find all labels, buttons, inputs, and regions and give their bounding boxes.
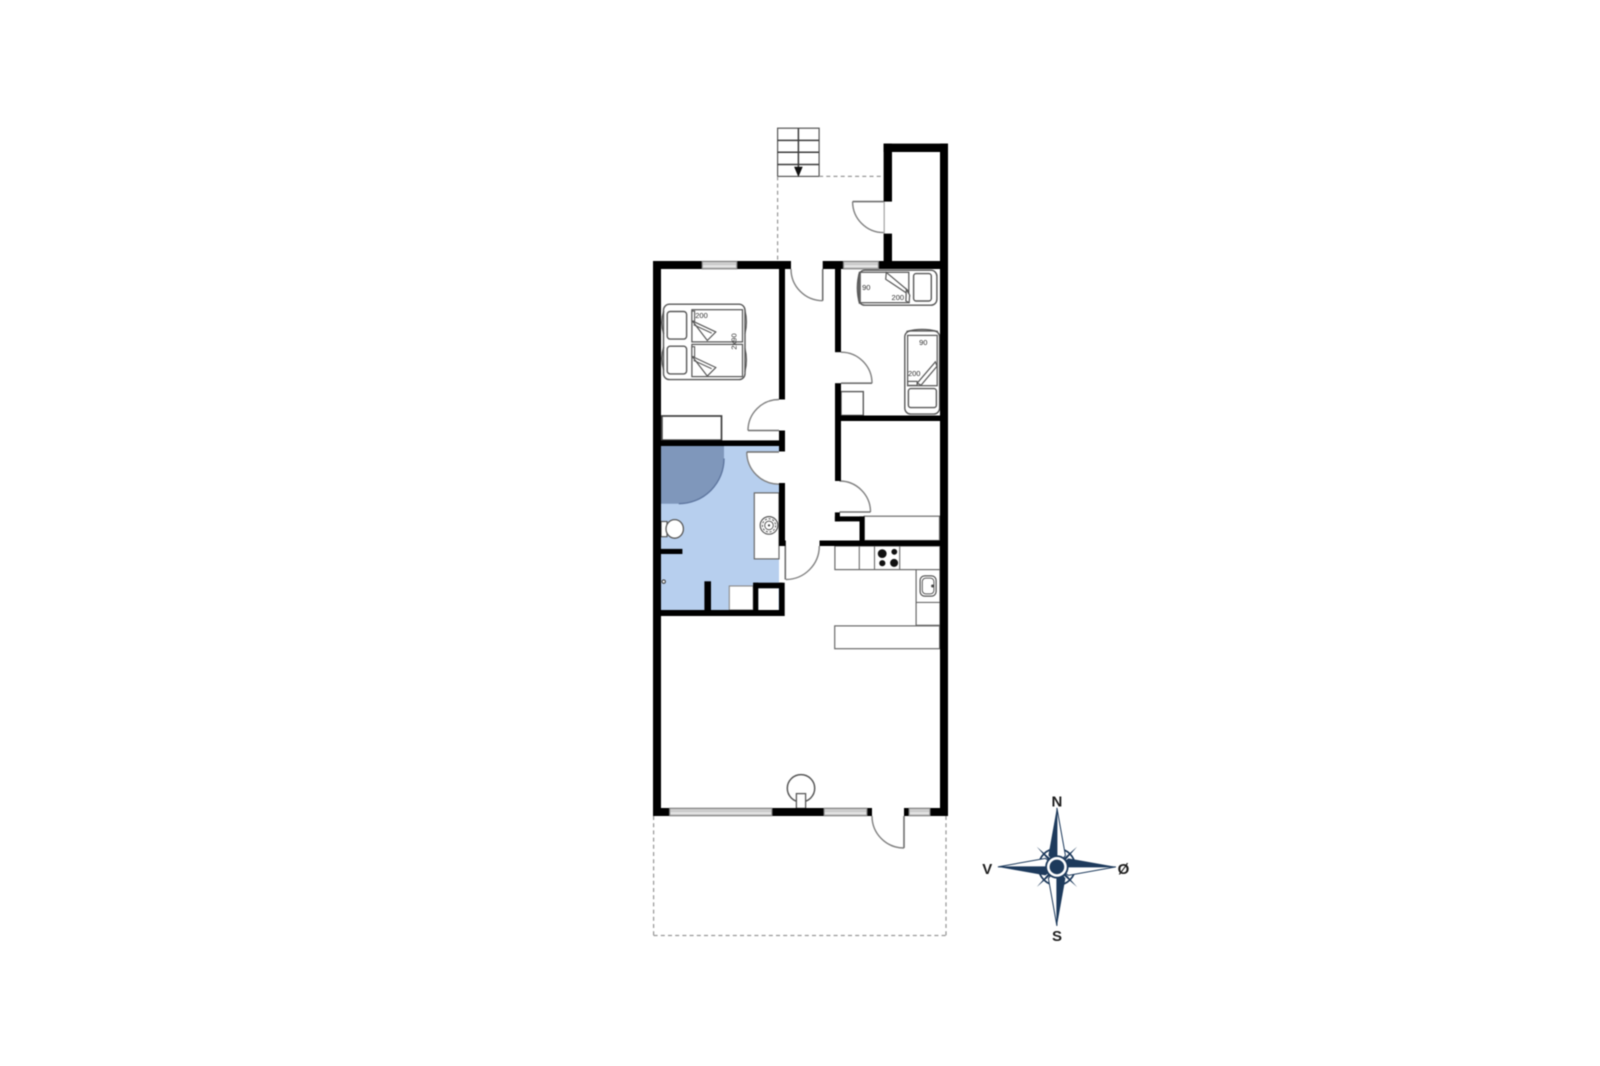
svg-text:200: 200 (892, 293, 905, 302)
svg-text:200: 200 (908, 369, 921, 378)
svg-text:200: 200 (695, 311, 708, 320)
svg-text:V: V (982, 861, 992, 878)
svg-text:90: 90 (862, 283, 870, 292)
svg-text:N: N (1051, 794, 1062, 811)
svg-text:S: S (1052, 928, 1062, 945)
svg-text:90: 90 (919, 338, 927, 347)
svg-text:2x90: 2x90 (729, 333, 738, 349)
svg-text:Ø: Ø (1118, 861, 1130, 878)
